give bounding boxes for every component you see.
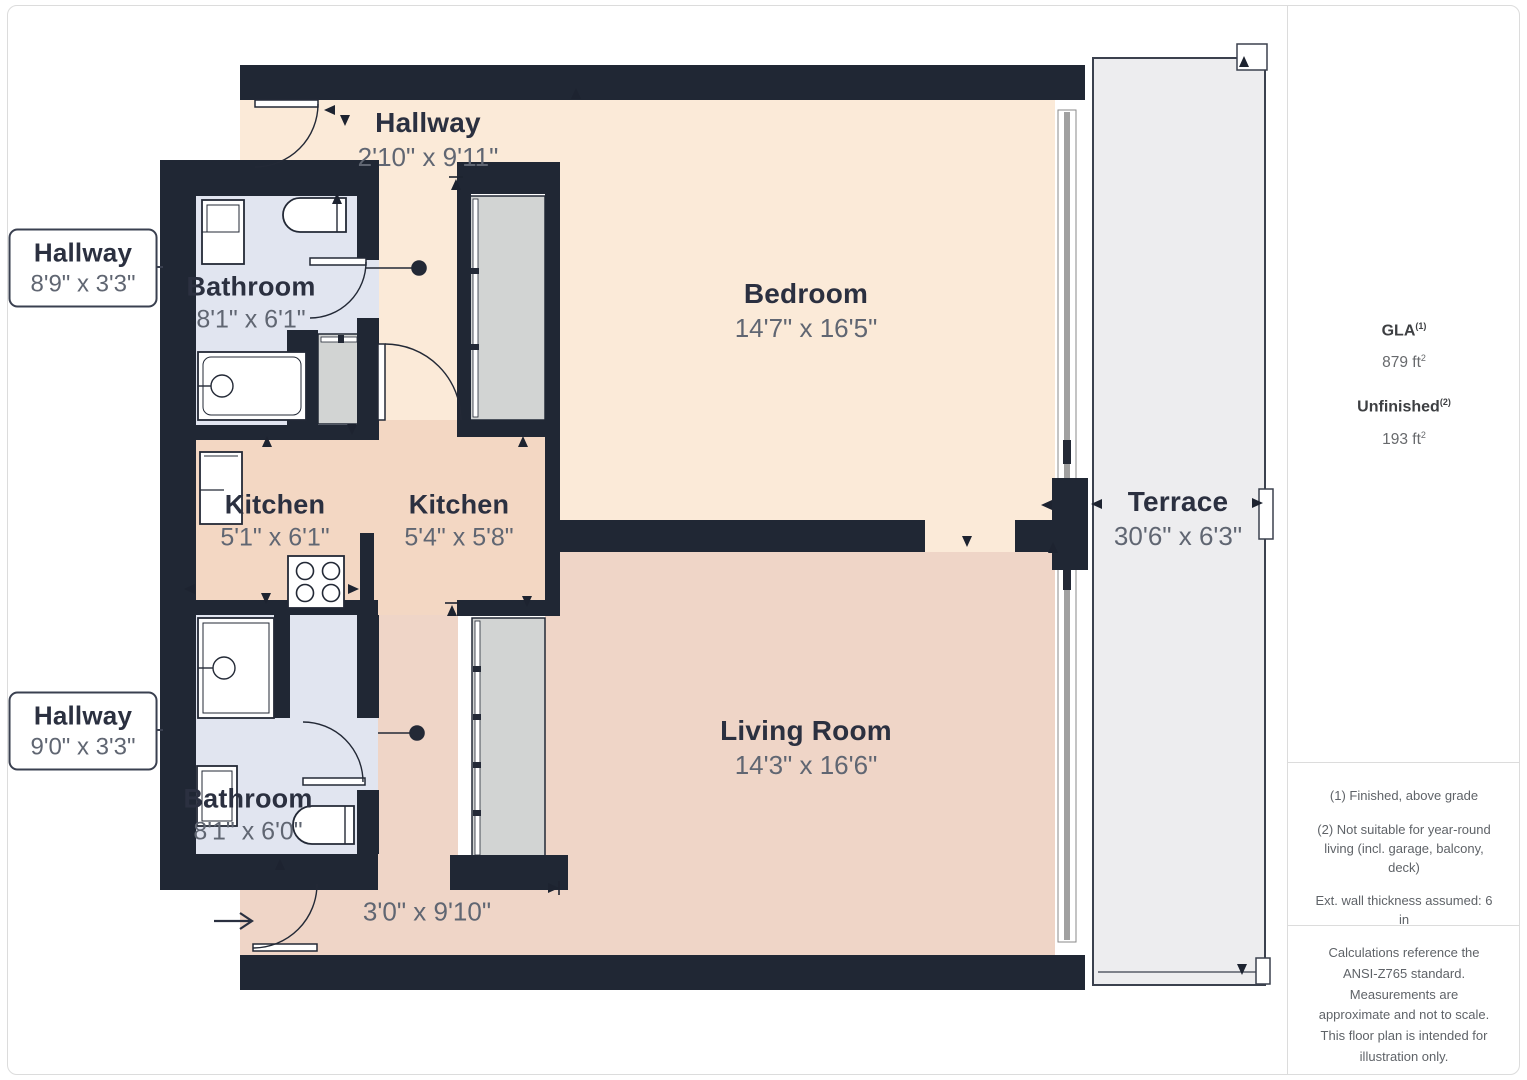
gla-label: GLA(1) [1288,316,1520,341]
wall-closet1-left [457,178,471,425]
closet-living [472,618,545,858]
window-mullion-lower [1063,568,1071,590]
window-glass-lower [1064,568,1070,940]
room-dims: 14'3" x 16'6" [720,750,892,781]
floor-bedroom [545,162,1055,552]
floor-hallway-column [379,162,457,440]
callout-dims: 8'9" x 3'3" [31,271,136,299]
stove-icon [288,556,344,608]
terrace-gate-marker [1259,489,1273,539]
terrace-step-bottom [1256,958,1270,984]
room-label-kitchen-center: Kitchen 5'4" x 5'8" [404,490,513,553]
sink-icon [202,200,244,264]
wall-leftwing-bottom [196,854,378,890]
window-mullion-upper [1063,440,1071,464]
room-label-living-room: Living Room 14'3" x 16'6" [720,715,892,781]
unfinished-label: Unfinished(2) [1288,392,1520,417]
room-name: Kitchen [220,490,329,521]
callout-dims: 9'0" x 3'3" [31,734,136,762]
room-label-kitchen-left: Kitchen 5'1" x 6'1" [220,490,329,553]
footnotes: (1) Finished, above grade (2) Not suitab… [1288,762,1520,926]
room-name: Bathroom [183,784,312,815]
wall-closet2-top [457,600,560,616]
room-label-bathroom-bottom: Bathroom 8'1" x 6'0" [183,784,312,847]
closet-bedroom [470,196,545,420]
footnote-2: (2) Not suitable for year-round living (… [1310,821,1498,878]
room-name: Bedroom [735,278,878,310]
room-name: Terrace [1114,486,1242,518]
wall-bottom [240,955,1085,990]
wall-bedroom-left [545,162,560,520]
room-name: Hallway [358,107,499,139]
room-name: Bathroom [186,272,315,303]
callout-hallway-upper: Hallway 8'9" x 3'3" [9,229,158,308]
room-dims: 30'6" x 6'3" [1114,521,1242,552]
wall-shower-stub [274,615,290,718]
room-dims: 2'10" x 9'11" [358,142,499,173]
unfinished-value: 193 ft2 [1288,425,1520,450]
room-dims: 5'1" x 6'1" [220,524,329,553]
closet-bathroom [318,334,360,424]
room-label-bedroom: Bedroom 14'7" x 16'5" [735,278,878,344]
room-label-terrace: Terrace 30'6" x 6'3" [1114,486,1242,552]
room-dims: 14'7" x 16'5" [735,313,878,344]
callout-name: Hallway [31,701,136,732]
room-dims: 3'0" x 9'10" [363,897,491,928]
room-name: Kitchen [404,490,513,521]
shower-icon [198,618,274,718]
wall-leftwing-top [196,160,368,196]
bathtub-icon [198,352,306,420]
wall-kitchen-bath2 [196,600,378,615]
wall-terrace-junction [1052,478,1088,570]
wall-kitchen-stub [360,533,374,603]
room-label-bathroom-top: Bathroom 8'1" x 6'1" [186,272,315,335]
room-name: Living Room [720,715,892,747]
floor-lower-column [378,615,458,890]
wall-top [240,65,1085,100]
wall-bath2-right-upper [357,615,379,718]
footnote-1: (1) Finished, above grade [1310,787,1498,806]
area-stats: GLA(1) 879 ft2 Unfinished(2) 193 ft2 [1288,316,1520,469]
gla-value: 879 ft2 [1288,348,1520,373]
room-label-corridor: 3'0" x 9'10" [363,897,491,928]
room-label-hallway-top: Hallway 2'10" x 9'11" [358,107,499,173]
room-dims: 8'1" x 6'0" [183,818,312,847]
callout-hallway-lower: Hallway 9'0" x 3'3" [9,692,158,771]
disclaimer: Calculations reference the ANSI-Z765 sta… [1288,925,1520,1074]
wall-bedroom-bottom [545,520,925,552]
window-glass-upper [1064,112,1070,480]
wall-bath2-right-lower [357,790,379,854]
wall-left [160,160,196,890]
wall-closet1-bottom [457,420,560,437]
room-dims: 5'4" x 5'8" [404,524,513,553]
wall-bath1-right-upper [357,160,379,260]
callout-name: Hallway [31,238,136,269]
wall-bath1-right-lower [357,318,379,440]
info-sidebar: GLA(1) 879 ft2 Unfinished(2) 193 ft2 (1)… [1287,6,1520,1074]
room-dims: 8'1" x 6'1" [186,306,315,335]
